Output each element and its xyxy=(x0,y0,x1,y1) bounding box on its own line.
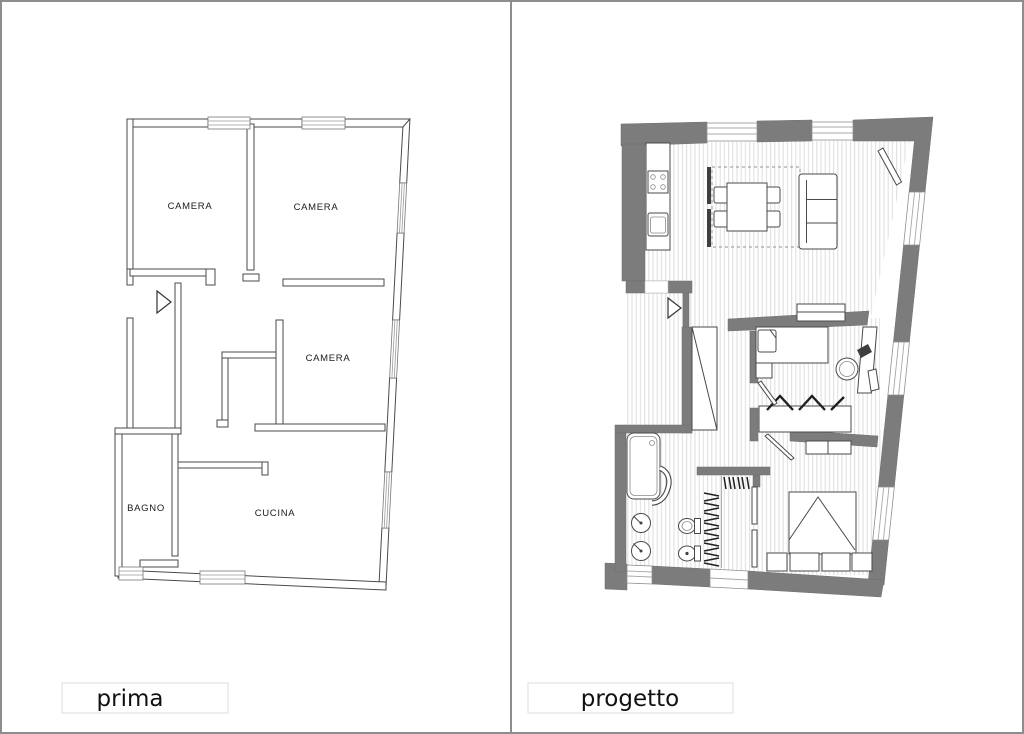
window-top-2 xyxy=(302,117,345,129)
door-jamb xyxy=(206,269,215,285)
foot-bench xyxy=(822,553,850,571)
sideboard xyxy=(707,167,711,204)
floor-closet xyxy=(697,467,760,572)
wall-bagno-right xyxy=(172,434,178,556)
interior-walls xyxy=(115,124,385,567)
dining-chair xyxy=(766,187,780,203)
floor-plan-before: CAMERA CAMERA CAMERA BAGNO CUCINA prima xyxy=(0,0,512,734)
wall-camera2-bottom xyxy=(283,279,384,286)
nightstand xyxy=(767,553,787,571)
caption-text-after: progetto xyxy=(581,686,679,712)
wall-bagno-top xyxy=(115,428,181,434)
wall-closet-left xyxy=(222,358,228,420)
entry-door-opening xyxy=(645,281,668,293)
window-top-1 xyxy=(707,123,757,141)
panel-divider xyxy=(510,0,512,734)
pillow xyxy=(758,330,776,352)
wall-entry-jamb xyxy=(683,293,689,327)
room-label-cucina: CUCINA xyxy=(255,508,296,519)
window-right-2 xyxy=(888,342,910,395)
floor-plan-after: progetto xyxy=(512,0,1024,734)
wall-right-2 xyxy=(393,233,405,320)
wall-closet-top xyxy=(222,352,276,358)
wall-right-4 xyxy=(379,528,389,585)
wall-top-left xyxy=(621,122,707,146)
wall-left-3 xyxy=(127,318,133,428)
nightstand xyxy=(852,553,872,571)
wall-bath-left xyxy=(615,433,626,572)
room-label-camera1: CAMERA xyxy=(168,201,213,212)
wall-hall-right xyxy=(175,283,181,428)
comparison-canvas: CAMERA CAMERA CAMERA BAGNO CUCINA prima xyxy=(0,0,1024,734)
room-labels: CAMERA CAMERA CAMERA BAGNO CUCINA xyxy=(127,201,350,519)
wall-top-mid xyxy=(757,120,812,142)
bedside-cabinet xyxy=(756,363,772,378)
cooktop xyxy=(648,171,668,193)
room-label-bagno: BAGNO xyxy=(127,503,165,514)
room-label-camera2: CAMERA xyxy=(294,202,339,213)
sliding-panel xyxy=(752,530,757,567)
bathtub xyxy=(627,433,660,499)
toilet-tank xyxy=(695,519,701,534)
wall-left-1 xyxy=(127,119,133,269)
wall-studio-left-lower xyxy=(750,408,758,441)
window-bagno xyxy=(119,567,143,580)
caption-text-before: prima xyxy=(97,686,164,712)
wall-bottom-mid xyxy=(652,566,710,587)
wall-left-4 xyxy=(115,428,122,576)
wall-stub xyxy=(243,274,259,281)
wall-camera3-bottom xyxy=(255,424,385,431)
dining-chair xyxy=(714,187,728,203)
dining-chair xyxy=(714,211,728,227)
daybed xyxy=(759,406,851,432)
window-bottom xyxy=(627,565,652,584)
panel-after: progetto xyxy=(512,0,1024,734)
room-label-camera3: CAMERA xyxy=(306,353,351,364)
double-bed xyxy=(789,492,856,554)
wall-closet-top xyxy=(697,467,770,475)
foot-bench xyxy=(790,553,819,571)
caption-before: prima xyxy=(62,683,228,713)
wall-between-bedrooms xyxy=(247,124,254,270)
dining-table xyxy=(727,183,767,231)
window-top-2 xyxy=(812,122,853,140)
sliding-panel xyxy=(752,487,757,524)
wall-closet-foot xyxy=(217,420,228,427)
window-cucina xyxy=(200,571,245,584)
wall-cucina-top xyxy=(178,462,268,468)
wall-camera1-bottom xyxy=(130,269,215,276)
sideboard xyxy=(707,209,711,247)
dining-chair xyxy=(766,211,780,227)
window-right-1 xyxy=(904,192,926,245)
wall-right-1 xyxy=(400,119,410,183)
caption-after: progetto xyxy=(528,683,733,713)
window-top-1 xyxy=(208,117,250,129)
wall-top-3 xyxy=(345,119,409,127)
wall-kitchen-left xyxy=(622,144,645,281)
wall-bottom xyxy=(118,570,386,590)
sofa xyxy=(799,174,837,249)
wall-wardrobe-stub xyxy=(682,327,692,433)
toilet xyxy=(679,519,696,534)
wall-right-3 xyxy=(385,378,397,472)
wall-camera3-left xyxy=(276,320,283,428)
wall-bagno-door-stub xyxy=(140,560,178,567)
wall-closet-right-stub xyxy=(753,475,760,487)
wall-top-1 xyxy=(130,119,208,127)
wall-cucina-jamb xyxy=(262,462,268,475)
panel-before: CAMERA CAMERA CAMERA BAGNO CUCINA prima xyxy=(0,0,512,734)
entrance-arrow-icon xyxy=(157,291,171,313)
bidet-tap xyxy=(695,546,701,561)
wall-bath-top xyxy=(615,425,692,433)
wall-top-2 xyxy=(250,119,302,127)
wall-right-1 xyxy=(893,245,919,342)
